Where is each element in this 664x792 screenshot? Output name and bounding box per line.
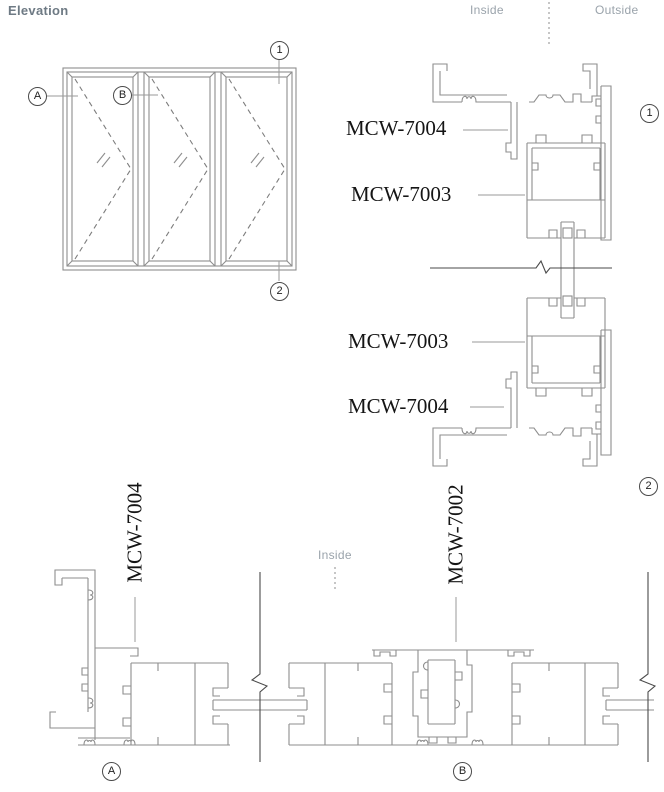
mullion-inner	[428, 660, 455, 724]
head-frame-right-hook	[583, 64, 601, 102]
sash-b-right-glass-pocket	[603, 688, 618, 724]
elevation-sash-3	[226, 77, 287, 261]
label-sill-frame: MCW-7004	[348, 396, 448, 417]
inside-outside-divider-dotted	[335, 2, 549, 592]
sash-box-b-right	[392, 663, 618, 745]
sash-a-outer-hooks	[123, 686, 131, 726]
section-break-line-horizontal	[430, 261, 612, 273]
marker-detail-2: 2	[639, 477, 658, 496]
label-head-frame: MCW-7004	[346, 118, 446, 139]
marker-elevation-a: A	[28, 87, 47, 106]
inside-label-bottom: Inside	[318, 548, 352, 562]
mullion-top-cap	[372, 650, 534, 656]
inside-label-top: Inside	[470, 3, 504, 17]
label-sill-sash: MCW-7003	[348, 331, 448, 352]
setting-block-top	[563, 228, 572, 238]
sash-a-glass-pocket	[213, 688, 228, 724]
head-frame-inner	[440, 71, 507, 95]
outer-face-bar-bottom	[596, 330, 611, 455]
sill-frame-gasket	[462, 428, 511, 434]
marker-elevation-b: B	[113, 86, 132, 105]
sill-glazing-hooks	[549, 298, 585, 306]
setting-block-bottom	[563, 296, 572, 306]
glass-tick-marks	[97, 153, 264, 167]
sill-frame-channel	[433, 428, 462, 466]
head-frame-gasket	[462, 96, 511, 102]
label-meeting-mullion: MCW-7002	[446, 484, 467, 584]
marker-elevation-2: 2	[270, 282, 289, 301]
jamb-bottom-strip	[78, 738, 230, 745]
elevation-mullions	[138, 72, 221, 266]
elevation-drawing	[63, 68, 296, 270]
sash-b-right-hooks	[512, 684, 520, 724]
mullion-inner-hooks	[421, 662, 462, 708]
label-jamb-frame: MCW-7004	[125, 482, 146, 582]
sash-box-b-left	[289, 663, 392, 745]
sash-b-left-glass-pocket	[289, 688, 304, 724]
sill-sash-inner-hooks	[532, 366, 600, 373]
sash-b-left-hooks	[384, 684, 392, 724]
label-head-sash: MCW-7003	[351, 184, 451, 205]
line-work	[0, 0, 664, 792]
head-sash-inner-hooks	[532, 163, 600, 170]
jamb-gasket-curls	[88, 590, 93, 708]
head-section-drawing	[433, 64, 611, 318]
jamb-inner-hooks	[82, 668, 88, 691]
opening-direction-dashed-lines	[75, 79, 285, 259]
mullion-feet	[429, 737, 456, 743]
meeting-section-drawing	[289, 650, 654, 745]
sash-b-right-inner	[549, 663, 585, 745]
sill-sash-inner	[527, 336, 605, 383]
elevation-corner-bevels	[67, 72, 292, 266]
sill-frame-right-hook	[583, 428, 601, 466]
elevation-sash-2	[149, 77, 210, 261]
head-glazing-hooks	[549, 230, 585, 238]
section-break-lines-vertical	[252, 572, 655, 762]
sill-sash-bottom-hooks	[536, 388, 592, 396]
glass-unit-right	[606, 700, 654, 710]
sash-b-left-inner	[325, 663, 358, 745]
drawing-sheet: Elevation Inside Outside Inside MCW-7004…	[0, 0, 664, 792]
head-gasket-strip	[529, 94, 592, 102]
elevation-inner-frame	[67, 72, 292, 266]
jamb-bottom-hook	[50, 712, 95, 728]
elevation-leader-lines	[46, 59, 279, 281]
jamb-section-drawing	[50, 570, 307, 745]
head-sash-top-hooks	[536, 135, 592, 143]
elevation-outer-frame	[63, 68, 296, 270]
head-sash-box	[527, 143, 605, 238]
sill-sash-box	[527, 298, 605, 388]
sill-frame-tongue	[506, 372, 517, 428]
sill-section-drawing	[433, 298, 611, 466]
sill-gasket-strip	[529, 428, 592, 436]
jamb-frame-outer	[55, 570, 95, 740]
outside-label-top: Outside	[595, 3, 638, 17]
marker-elevation-1: 1	[270, 41, 289, 60]
jamb-frame-leg	[95, 648, 138, 656]
jamb-bottom-gaskets	[84, 740, 135, 745]
sill-frame-inner	[440, 435, 507, 459]
head-sash-inner	[527, 148, 605, 200]
page-title: Elevation	[8, 3, 69, 18]
jamb-frame-inner-wall	[62, 578, 88, 712]
head-frame-channel	[433, 64, 462, 102]
marker-section-b: B	[453, 762, 472, 781]
marker-section-a: A	[102, 762, 121, 781]
marker-detail-1: 1	[640, 104, 659, 123]
